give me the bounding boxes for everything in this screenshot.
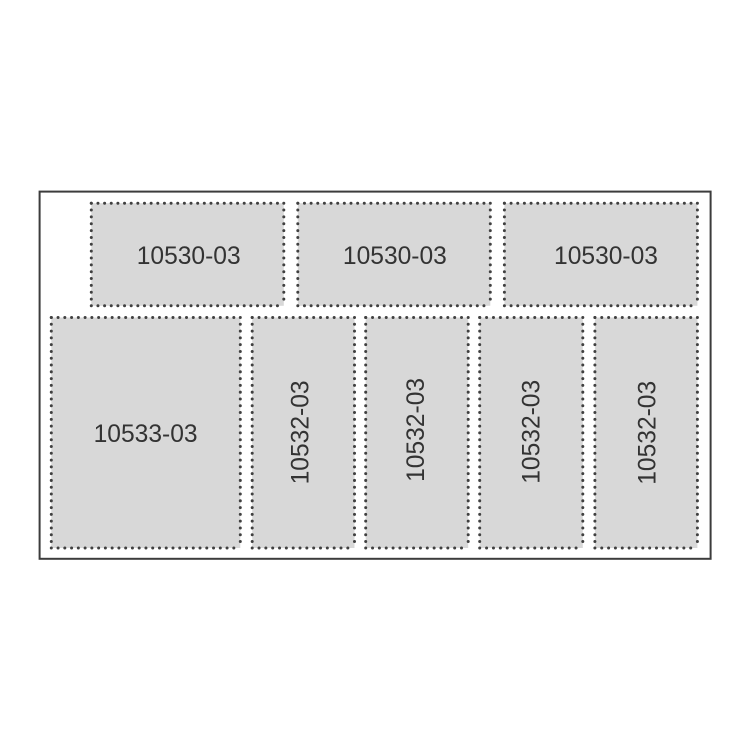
svg-text:10533-03: 10533-03	[94, 421, 198, 448]
svg-text:10532-03: 10532-03	[635, 381, 662, 485]
svg-text:10532-03: 10532-03	[403, 378, 430, 482]
svg-text:10530-03: 10530-03	[137, 243, 241, 270]
svg-text:10530-03: 10530-03	[554, 243, 658, 270]
svg-text:10532-03: 10532-03	[519, 380, 546, 484]
svg-text:10530-03: 10530-03	[343, 243, 447, 270]
svg-text:10532-03: 10532-03	[288, 380, 315, 484]
